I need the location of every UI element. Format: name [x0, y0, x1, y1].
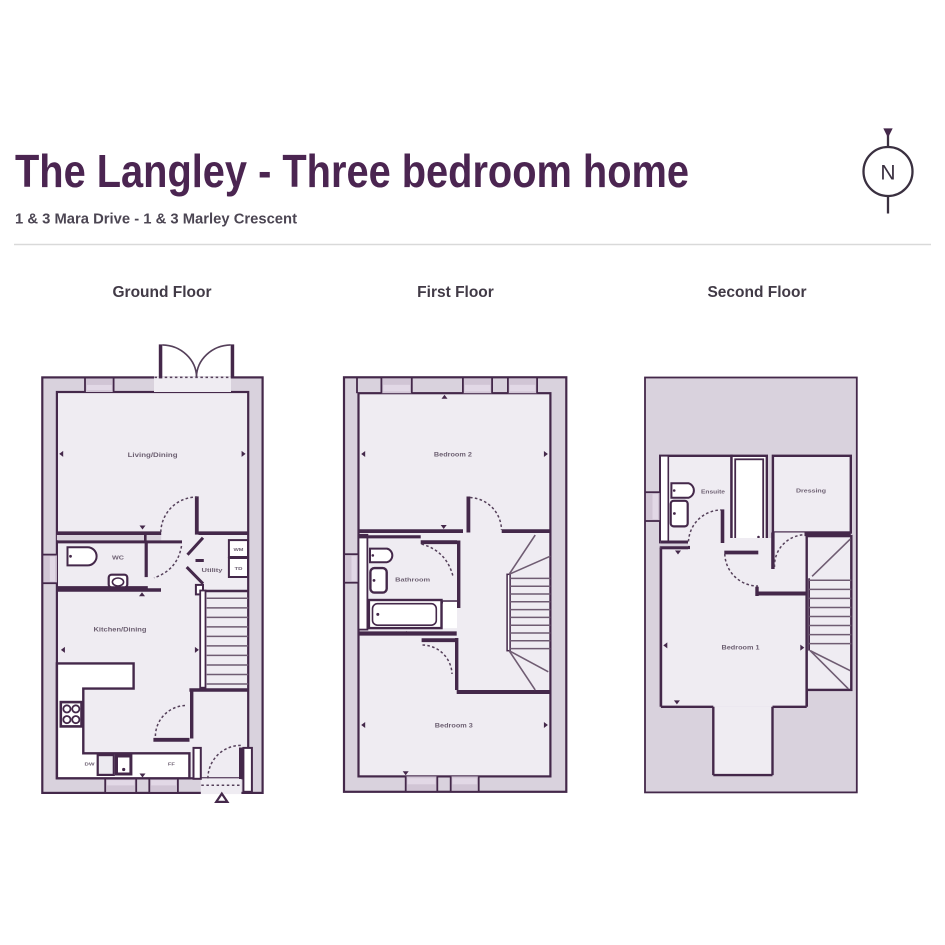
- svg-text:Utility: Utility: [202, 568, 223, 574]
- svg-text:1 & 3 Mara Drive - 1 & 3 Marle: 1 & 3 Mara Drive - 1 & 3 Marley Crescent: [15, 212, 297, 228]
- svg-text:WC: WC: [112, 556, 125, 562]
- svg-text:FF: FF: [168, 762, 175, 767]
- svg-text:Ground Floor: Ground Floor: [112, 284, 211, 301]
- svg-text:The Langley - Three bedroom ho: The Langley - Three bedroom home: [15, 145, 689, 197]
- svg-text:Kitchen/Dining: Kitchen/Dining: [94, 627, 147, 634]
- svg-text:Bedroom 3: Bedroom 3: [435, 723, 474, 730]
- svg-text:Bathroom: Bathroom: [395, 578, 431, 584]
- svg-text:TD: TD: [235, 566, 244, 571]
- svg-text:WM: WM: [234, 547, 244, 552]
- svg-text:Bedroom 2: Bedroom 2: [434, 452, 473, 459]
- svg-text:DW: DW: [85, 762, 96, 767]
- svg-text:Living/Dining: Living/Dining: [128, 452, 178, 459]
- svg-text:First Floor: First Floor: [417, 284, 494, 301]
- svg-text:Dressing: Dressing: [796, 489, 826, 495]
- svg-text:Ensuite: Ensuite: [701, 489, 725, 495]
- svg-text:Bedroom 1: Bedroom 1: [722, 645, 761, 652]
- svg-text:N: N: [880, 162, 895, 185]
- svg-text:Second Floor: Second Floor: [707, 284, 806, 301]
